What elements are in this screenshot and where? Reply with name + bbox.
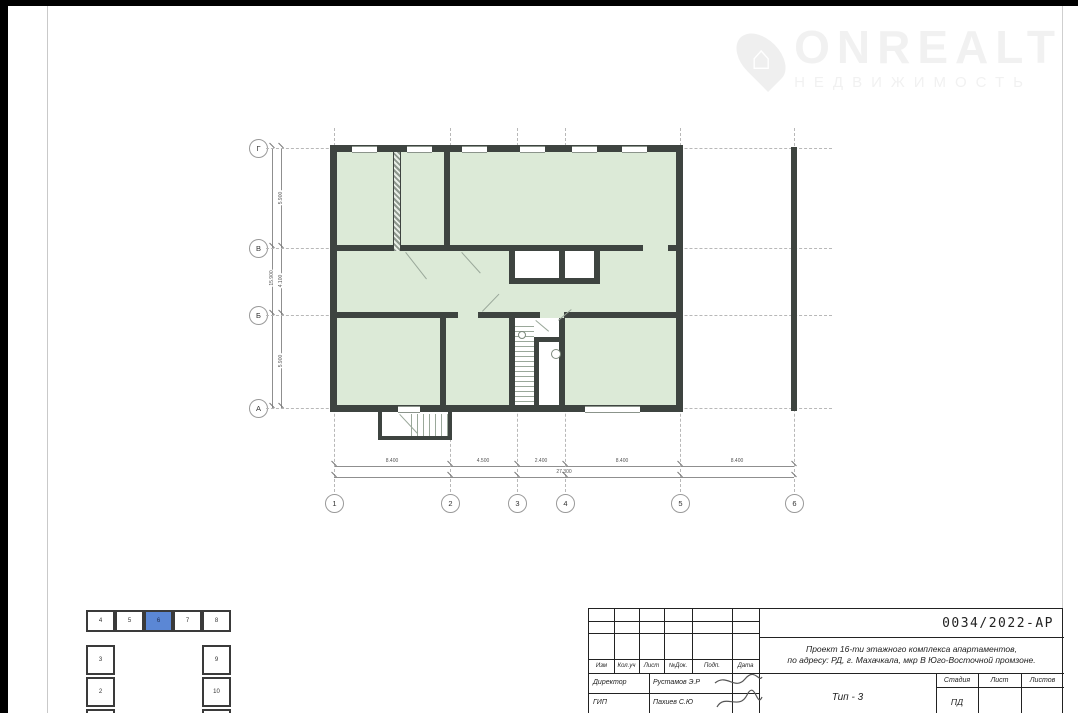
stage-header: Стадия [936, 673, 978, 687]
project-title-line2: по адресу: РД, г. Махачкала, мкр В Юго-В… [787, 655, 1035, 666]
titleblock-line [589, 633, 759, 634]
wall-segment [564, 312, 676, 318]
wall-segment [378, 436, 452, 440]
wall-segment [534, 337, 539, 406]
wall-segment [594, 245, 600, 284]
wall-segment [509, 278, 600, 284]
dimension-value: 2.400 [534, 458, 549, 464]
wall-segment [668, 245, 676, 251]
axis-bubble-col-6: 6 [785, 494, 804, 513]
keyplan-cell: 2 [86, 677, 115, 707]
window-opening [622, 146, 647, 153]
axis-label: 5 [678, 499, 682, 508]
dimension-value: 5.900 [278, 354, 284, 369]
floor-fill [337, 152, 676, 405]
axis-label: 4 [563, 499, 567, 508]
key-plan: 4 5 6 7 8 3 2 9 10 [86, 610, 231, 713]
wall-segment [509, 245, 515, 284]
wall-segment [448, 412, 452, 440]
wall-segment [791, 147, 797, 411]
wall-segment [676, 145, 683, 412]
window-opening [520, 146, 545, 153]
sheet-frame-left [47, 6, 48, 713]
dimension-total: 15.900 [269, 269, 275, 286]
document-number: 0034/2022-АР [759, 609, 1064, 637]
entrance-steps [406, 414, 448, 436]
scan-border-left [0, 0, 8, 713]
watermark-subtitle: НЕДВИЖИМОСТЬ [794, 74, 1062, 91]
watermark-brand: ONREALT [794, 24, 1062, 70]
door-opening [398, 406, 420, 413]
axis-label: Г [256, 144, 260, 153]
keyplan-cell-label: 3 [99, 657, 102, 663]
wall-segment [444, 152, 450, 251]
axis-label: Б [256, 311, 261, 320]
dimension-value: 8.400 [615, 458, 630, 464]
axis-bubble-col-3: 3 [508, 494, 527, 513]
wall-segment [440, 318, 446, 406]
keyplan-cell-label: 10 [213, 689, 220, 695]
keyplan-cell-label: 8 [215, 618, 218, 624]
dimension-value: 5.900 [278, 191, 284, 206]
keyplan-cell: 8 [202, 610, 231, 632]
wall-segment [559, 245, 565, 284]
rev-header-list: Лист [639, 659, 664, 673]
rev-header-koluch: Кол.уч [614, 659, 639, 673]
window-opening [352, 146, 377, 153]
axis-bubble-col-1: 1 [325, 494, 344, 513]
wall-segment [509, 318, 515, 406]
keyplan-cell-label: 4 [99, 618, 102, 624]
axis-label: 3 [515, 499, 519, 508]
title-block: 0034/2022-АР Проект 16-ти этажного компл… [588, 608, 1063, 713]
axis-bubble-col-5: 5 [671, 494, 690, 513]
keyplan-cell-label: 6 [157, 618, 160, 624]
dimension-value: 4.500 [476, 458, 491, 464]
stage-value: ПД [936, 687, 978, 713]
keyplan-cell: 7 [173, 610, 202, 632]
small-room-fill [515, 251, 559, 278]
keyplan-cell: 5 [115, 610, 144, 632]
window-opening [407, 146, 432, 153]
window-opening [572, 146, 597, 153]
dimension-line [334, 466, 794, 467]
small-room-fill [565, 251, 594, 278]
keyplan-cell-partial [202, 709, 231, 713]
keyplan-cell: 4 [86, 610, 115, 632]
sheets-header: Листов [1021, 673, 1064, 687]
stair-post-icon [518, 331, 526, 339]
sheet-header: Лист [978, 673, 1021, 687]
house-pin-icon: ⌂ [727, 24, 795, 92]
axis-label: 6 [792, 499, 796, 508]
titleblock-line [589, 621, 759, 622]
hatched-shaft-wall [393, 152, 401, 251]
axis-bubble-col-2: 2 [441, 494, 460, 513]
signature-scribble [709, 665, 764, 713]
keyplan-cell-label: 9 [215, 657, 218, 663]
keyplan-cell-label: 5 [128, 618, 131, 624]
dimension-line [334, 477, 794, 478]
keyplan-cell: 3 [86, 645, 115, 675]
axis-label: В [256, 244, 261, 253]
project-title: Проект 16-ти этажного комплекса апартаме… [759, 637, 1064, 673]
axis-label: 1 [332, 499, 336, 508]
keyplan-cell: 10 [202, 677, 231, 707]
signer-name: Пахиев С.Ю [653, 699, 693, 706]
sheet-type: Тип - 3 [759, 673, 936, 713]
axis-bubble-col-4: 4 [556, 494, 575, 513]
signer-name: Рустамов Э.Р [653, 679, 700, 686]
sheet-frame-right [1062, 6, 1063, 713]
axis-label: 2 [448, 499, 452, 508]
keyplan-cell-label: 7 [186, 618, 189, 624]
keyplan-cell: 9 [202, 645, 231, 675]
wall-segment [330, 145, 337, 412]
project-title-line1: Проект 16-ти этажного комплекса апартаме… [806, 644, 1017, 655]
axis-label: А [256, 404, 261, 413]
keyplan-cell-highlighted: 6 [144, 610, 173, 632]
dimension-value: 8.400 [385, 458, 400, 464]
watermark: ⌂ ONREALT НЕДВИЖИМОСТЬ [742, 24, 1062, 91]
dimension-value: 8.400 [730, 458, 745, 464]
dimension-value: 4.100 [278, 274, 284, 289]
rev-header-ndok: №Док. [664, 659, 692, 673]
scan-border-top [0, 0, 1078, 6]
keyplan-cell-label: 2 [99, 689, 102, 695]
signer-role: Директор [593, 679, 627, 686]
fixture-icon [551, 349, 561, 359]
signer-role: ГИП [593, 699, 607, 706]
drawing-sheet: ⌂ ONREALT НЕДВИЖИМОСТЬ Тех. помещ 16.07 … [0, 0, 1078, 713]
keyplan-cell-partial [86, 709, 115, 713]
watermark-text: ONREALT НЕДВИЖИМОСТЬ [794, 24, 1062, 91]
wall-segment [559, 318, 565, 406]
window-opening [462, 146, 487, 153]
rev-header-izm: Изм [589, 659, 614, 673]
window-opening [585, 406, 640, 413]
wall-segment [337, 312, 458, 318]
